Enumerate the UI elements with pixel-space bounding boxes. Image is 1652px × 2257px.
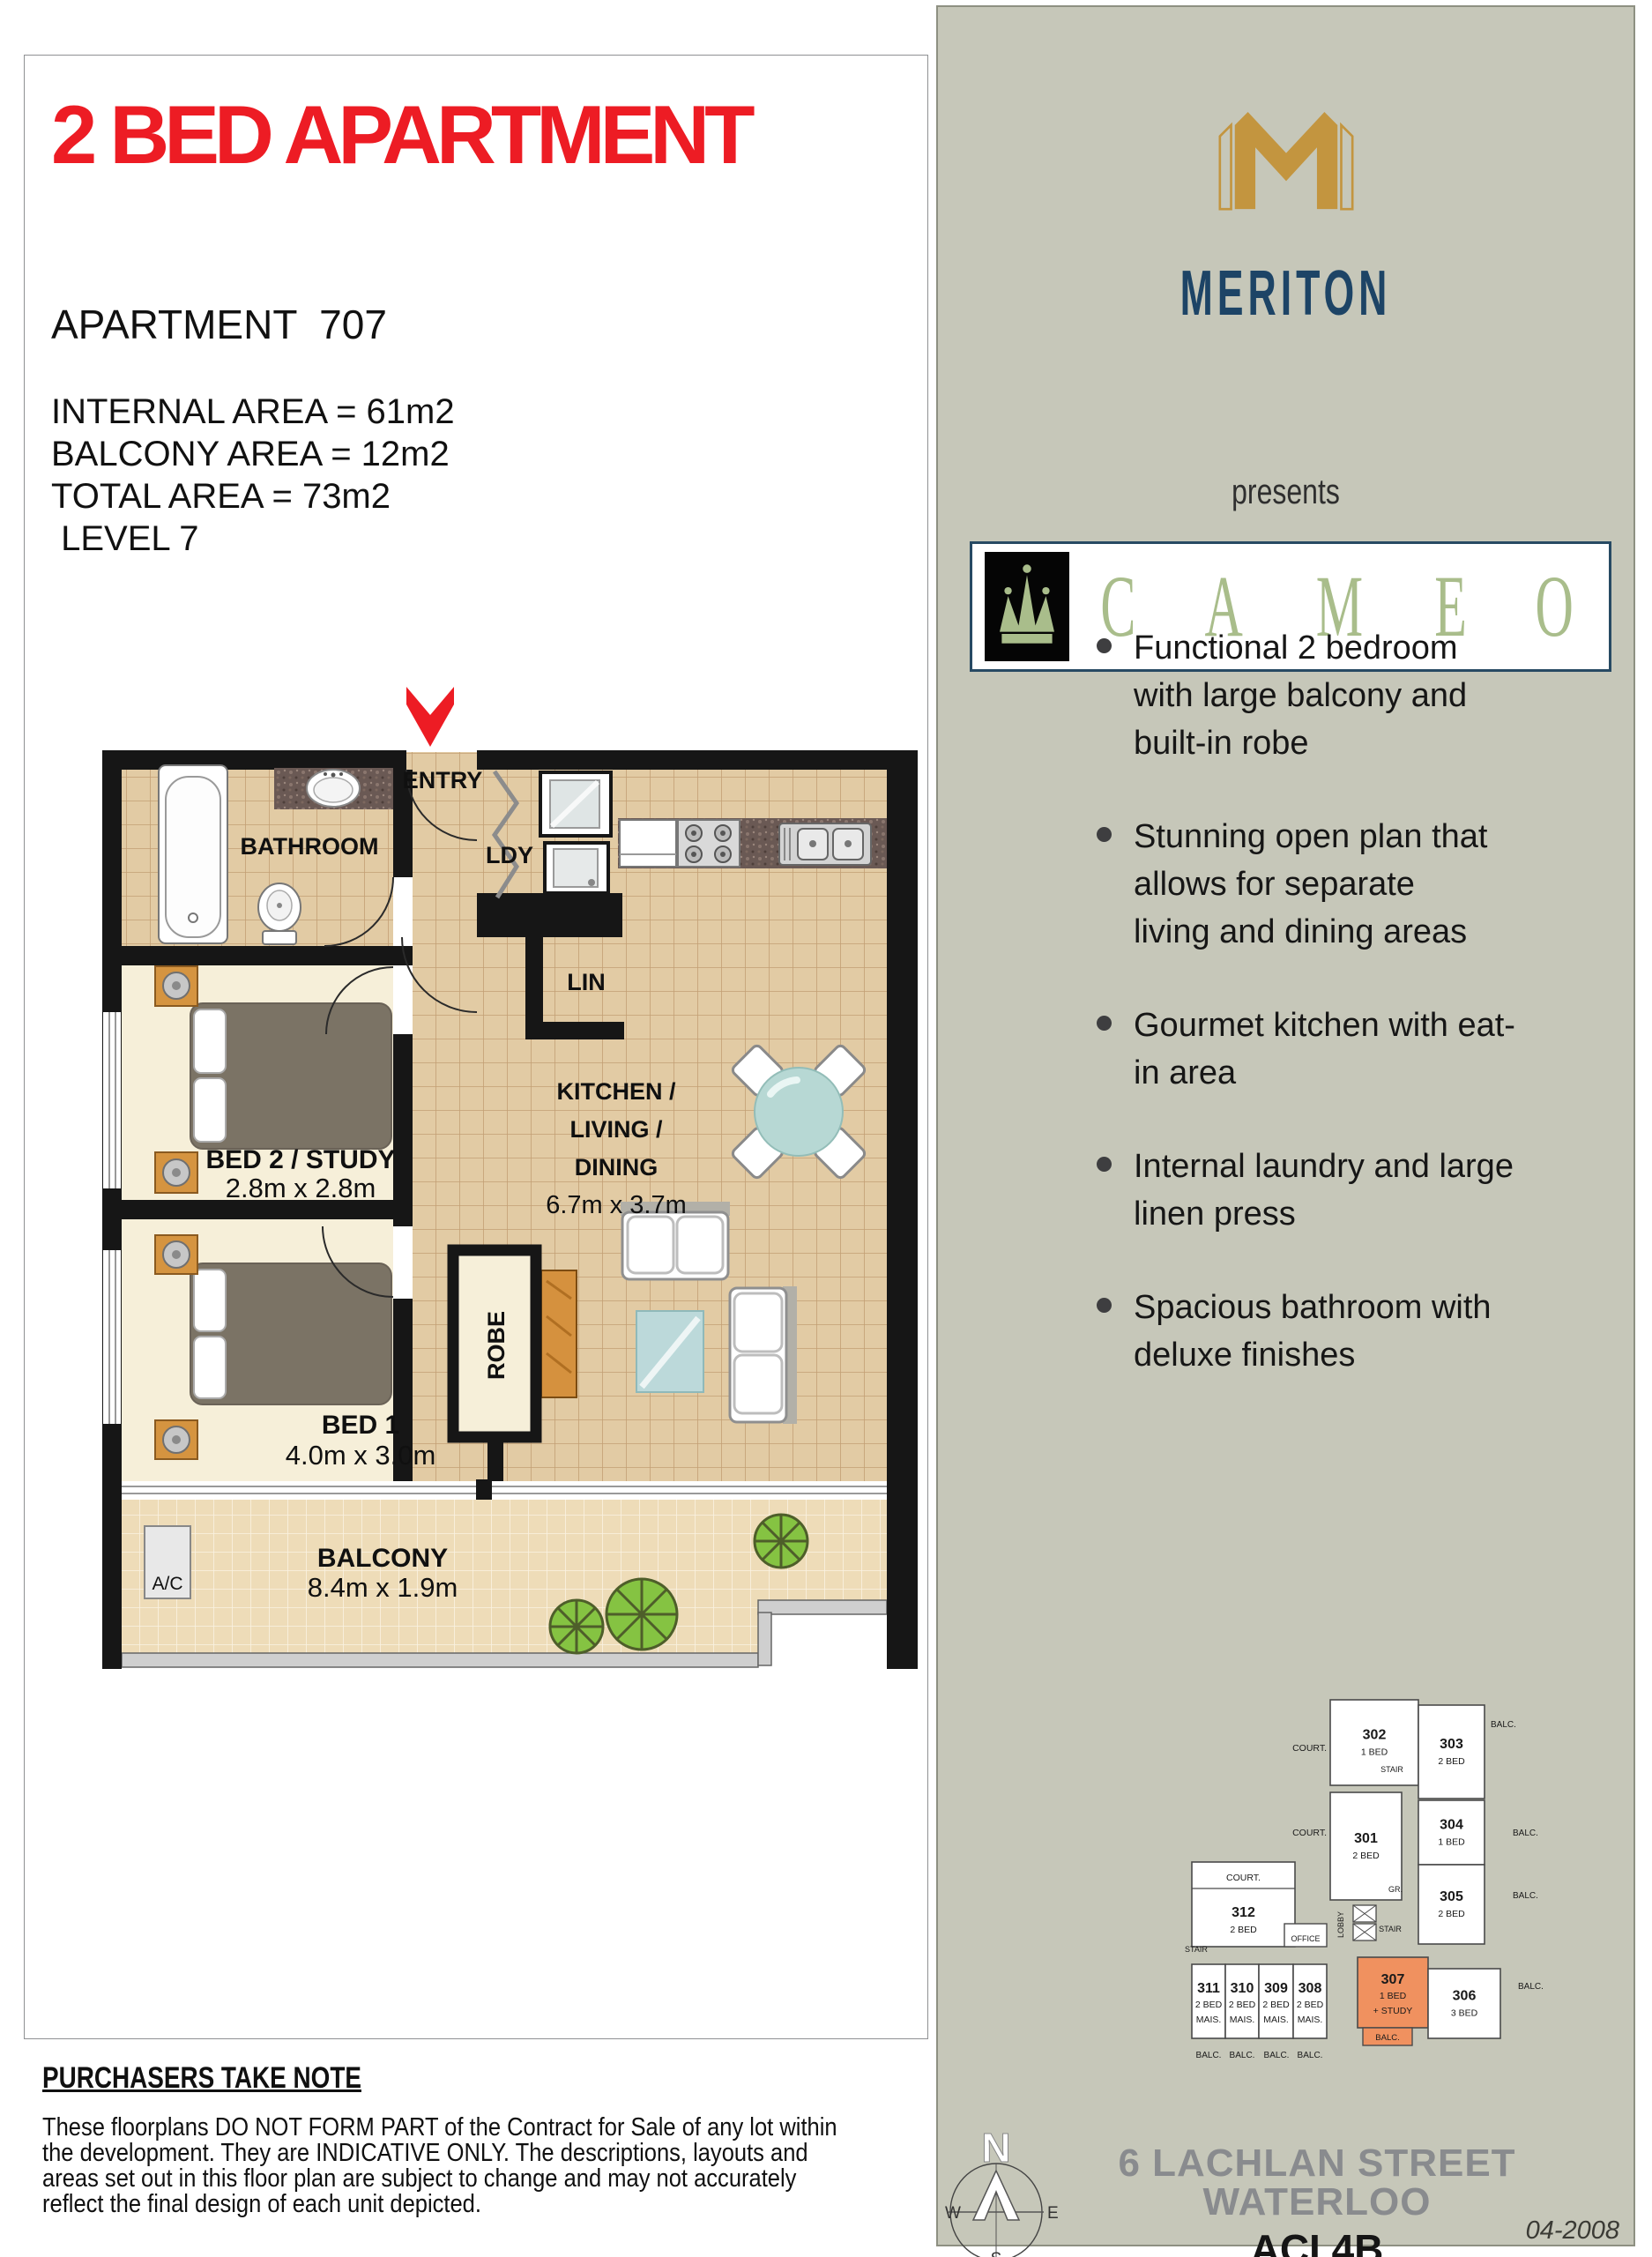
floorplate-label: COURT. (1292, 1743, 1327, 1754)
bullet-dot-icon (1097, 1157, 1112, 1172)
bullet-dot-icon (1097, 1016, 1112, 1031)
bed1-icon (190, 1263, 391, 1404)
fridge-icon (620, 820, 676, 867)
ac-label: A/C (152, 1574, 182, 1594)
kitchen-label-2: LIVING / (569, 1116, 663, 1143)
bed2-label: BED 2 / STUDY (205, 1145, 395, 1174)
bed1-label: BED 1 (322, 1411, 399, 1440)
lin-label: LIN (567, 969, 606, 995)
meriton-wordmark: MERITON (1070, 257, 1501, 330)
floorplate-unit-302 (1330, 1700, 1418, 1785)
bullet-dot-icon (1097, 1298, 1112, 1313)
bullet-line: Stunning open plan that (1134, 813, 1610, 860)
feature-bullet: Functional 2 bedroom with large balcony … (1134, 624, 1610, 767)
bullet-line: in area (1134, 1049, 1610, 1097)
floorplate-label: BALC. (1264, 2051, 1290, 2060)
kitchen-dims: 6.7m x 3.7m (546, 1191, 687, 1219)
toilet-icon (258, 883, 301, 944)
bullet-line: Functional 2 bedroom (1134, 624, 1610, 672)
purchasers-note: PURCHASERS TAKE NOTE These floorplans DO… (42, 2061, 946, 2217)
address-block: 6 LACHLAN STREET WATERLOO ACI 4B (1088, 2144, 1546, 2257)
entry-arrow-icon (406, 687, 454, 747)
floorplate-label: 312 (1232, 1905, 1255, 1920)
robe-label: ROBE (483, 1311, 510, 1380)
floorplate-label: 301 (1354, 1831, 1378, 1846)
floorplate-label: 311 (1197, 1981, 1220, 1996)
floorplate-label: MAIS. (1298, 2015, 1323, 2025)
laundry-appliances-icon (540, 772, 611, 893)
floorplate-label: 2 BED (1297, 2000, 1324, 2010)
cooktop-icon (678, 820, 740, 867)
floorplate-label: 304 (1440, 1818, 1463, 1833)
floorplate-label: 309 (1264, 1981, 1288, 1996)
bed1-dims: 4.0m x 3.0m (286, 1440, 436, 1471)
floorplate-label: 305 (1440, 1889, 1463, 1904)
floorplate-label: 2 BED (1230, 1925, 1257, 1935)
floorplate-label: 306 (1453, 1989, 1477, 2004)
floorplan-drawing: BATHROOM ENTRY LDY LIN KITCHEN / LIVING … (102, 682, 922, 1673)
note-heading: PURCHASERS TAKE NOTE (42, 2061, 783, 2096)
floorplate-label: GR. (1388, 1885, 1403, 1894)
floorplate-label: STAIR (1185, 1945, 1208, 1954)
floorplate-label: BALC. (1491, 1720, 1516, 1730)
floorplate-label: MAIS. (1230, 2015, 1255, 2025)
floorplate-label: 1 BED (1361, 1747, 1388, 1758)
brochure-page: 2 BED APARTMENT APARTMENT 707 INTERNAL A… (0, 0, 1652, 2257)
compass-s: S (991, 2250, 1002, 2257)
bullet-line: Spacious bathroom with (1134, 1284, 1610, 1331)
floorplate-label: 2 BED (1229, 2000, 1256, 2010)
area-summary: INTERNAL AREA = 61m2 BALCONY AREA = 12m2… (51, 391, 455, 560)
floorplate-label: 2 BED (1352, 1851, 1380, 1861)
bullet-line: allows for separate (1134, 860, 1610, 908)
marketing-sidebar: MERITON presents C A M E O (936, 5, 1635, 2246)
cameo-letter: C (1100, 562, 1135, 651)
feature-bullet: Stunning open plan that allows for separ… (1134, 813, 1610, 956)
feature-bullet: Gourmet kitchen with eat- in area (1134, 1002, 1610, 1097)
plan-code: ACI 4B (1088, 2225, 1546, 2257)
floorplate-label: BALC. (1513, 1829, 1538, 1838)
revision-date: 04-2008 (1526, 2216, 1619, 2246)
page-title: 2 BED APARTMENT (51, 87, 750, 182)
floorplate-label: COURT. (1292, 1828, 1327, 1838)
floorplate-label: 302 (1363, 1728, 1387, 1743)
note-line: These floorplans DO NOT FORM PART of the… (42, 2115, 837, 2141)
floorplate-label: 3 BED (1451, 2008, 1478, 2019)
vanity-sink-icon (274, 768, 393, 809)
balcony-dims: 8.4m x 1.9m (308, 1572, 458, 1603)
floorplate-label: STAIR (1379, 1925, 1402, 1933)
sofa-single-icon (730, 1286, 797, 1424)
compass-icon: N W E S (941, 2127, 1074, 2257)
kitchen-counter (618, 818, 887, 868)
bullet-line: linen press (1134, 1190, 1610, 1238)
floorplate-label: + STUDY (1373, 2006, 1413, 2016)
floorplate-label: BALC. (1298, 2051, 1323, 2060)
bed2-icon (190, 1003, 391, 1149)
floorplate-label: MAIS. (1263, 2015, 1289, 2025)
floorplate-label: 2 BED (1438, 1909, 1465, 1919)
crown-icon (985, 552, 1069, 661)
bullet-line: Gourmet kitchen with eat- (1134, 1002, 1610, 1049)
balcony-label: BALCONY (317, 1544, 448, 1573)
floorplate-unit-305 (1418, 1865, 1485, 1944)
bullet-line: living and dining areas (1134, 908, 1610, 956)
floorplate-label: OFFICE (1291, 1934, 1321, 1943)
note-line: areas set out in this floor plan are sub… (42, 2166, 837, 2192)
feature-bullet: Spacious bathroom with deluxe finishes (1134, 1284, 1610, 1379)
meriton-logo-icon (1207, 104, 1366, 245)
floorplate-label: 2 BED (1262, 2000, 1290, 2010)
kitchen-label-1: KITCHEN / (557, 1078, 676, 1105)
floorplate-label: COURT. (1226, 1873, 1261, 1883)
floorplate-label: 2 BED (1195, 2000, 1223, 2010)
floorplate-label: MAIS. (1196, 2015, 1222, 2025)
compass-e: E (1047, 2204, 1059, 2223)
bullet-line: built-in robe (1134, 719, 1610, 767)
floorplate-label: 307 (1381, 1972, 1405, 1987)
floorplate-label: BALC. (1513, 1891, 1538, 1901)
floorplate-label: 2 BED (1438, 1756, 1465, 1767)
feature-bullets: Functional 2 bedroom with large balcony … (1134, 624, 1610, 1425)
floorplate-label: 308 (1299, 1981, 1322, 1996)
address-line2: WATERLOO (1088, 2183, 1546, 2222)
note-line: the development. They are INDICATIVE ONL… (42, 2141, 837, 2166)
bed2-dims: 2.8m x 2.8m (226, 1173, 376, 1203)
floorplate-unit-303 (1418, 1705, 1485, 1799)
feature-bullet: Internal laundry and large linen press (1134, 1143, 1610, 1238)
apartment-number: APARTMENT 707 (51, 301, 387, 348)
ldy-label: LDY (486, 842, 533, 868)
floorplate-unit-301 (1330, 1792, 1402, 1900)
floorplate-label: 303 (1440, 1737, 1463, 1752)
coffee-table-icon (636, 1311, 703, 1392)
kitchen-label-3: DINING (575, 1154, 659, 1181)
presents-text: presents (1008, 473, 1564, 512)
bathtub-icon (159, 765, 227, 943)
double-sink-icon (779, 823, 871, 865)
floorplan-panel: 2 BED APARTMENT APARTMENT 707 INTERNAL A… (24, 55, 928, 2039)
address-line1: 6 LACHLAN STREET (1088, 2144, 1546, 2183)
bathroom-label: BATHROOM (241, 833, 379, 860)
bullet-dot-icon (1097, 638, 1112, 653)
bullet-dot-icon (1097, 827, 1112, 842)
floorplate-label: 1 BED (1380, 1991, 1407, 2001)
floorplate-label: LOBBY (1336, 1911, 1345, 1938)
floorplate-label: BALC. (1230, 2051, 1255, 2060)
floorplate-label: BALC. (1518, 1982, 1544, 1992)
floorplate-label: STAIR (1380, 1765, 1403, 1774)
floorplate-label: 1 BED (1438, 1837, 1465, 1848)
note-line: reflect the final design of each unit de… (42, 2192, 837, 2217)
floorplate-map: 3021 BED3032 BED3012 BED3041 BED3052 BED… (1183, 1693, 1633, 2116)
floorplate-label: BALC. (1196, 2051, 1222, 2060)
entry-label: ENTRY (403, 767, 483, 793)
floorplate-label: BALC. (1375, 2033, 1399, 2043)
floorplate-unit-306 (1428, 1969, 1500, 2038)
floorplate-unit-304 (1418, 1800, 1485, 1865)
floorplate-label: 310 (1231, 1981, 1254, 1996)
tv-unit-icon (541, 1270, 577, 1397)
bullet-line: with large balcony and (1134, 672, 1610, 719)
bullet-line: deluxe finishes (1134, 1331, 1610, 1379)
compass-w: W (945, 2204, 961, 2223)
bullet-line: Internal laundry and large (1134, 1143, 1610, 1190)
